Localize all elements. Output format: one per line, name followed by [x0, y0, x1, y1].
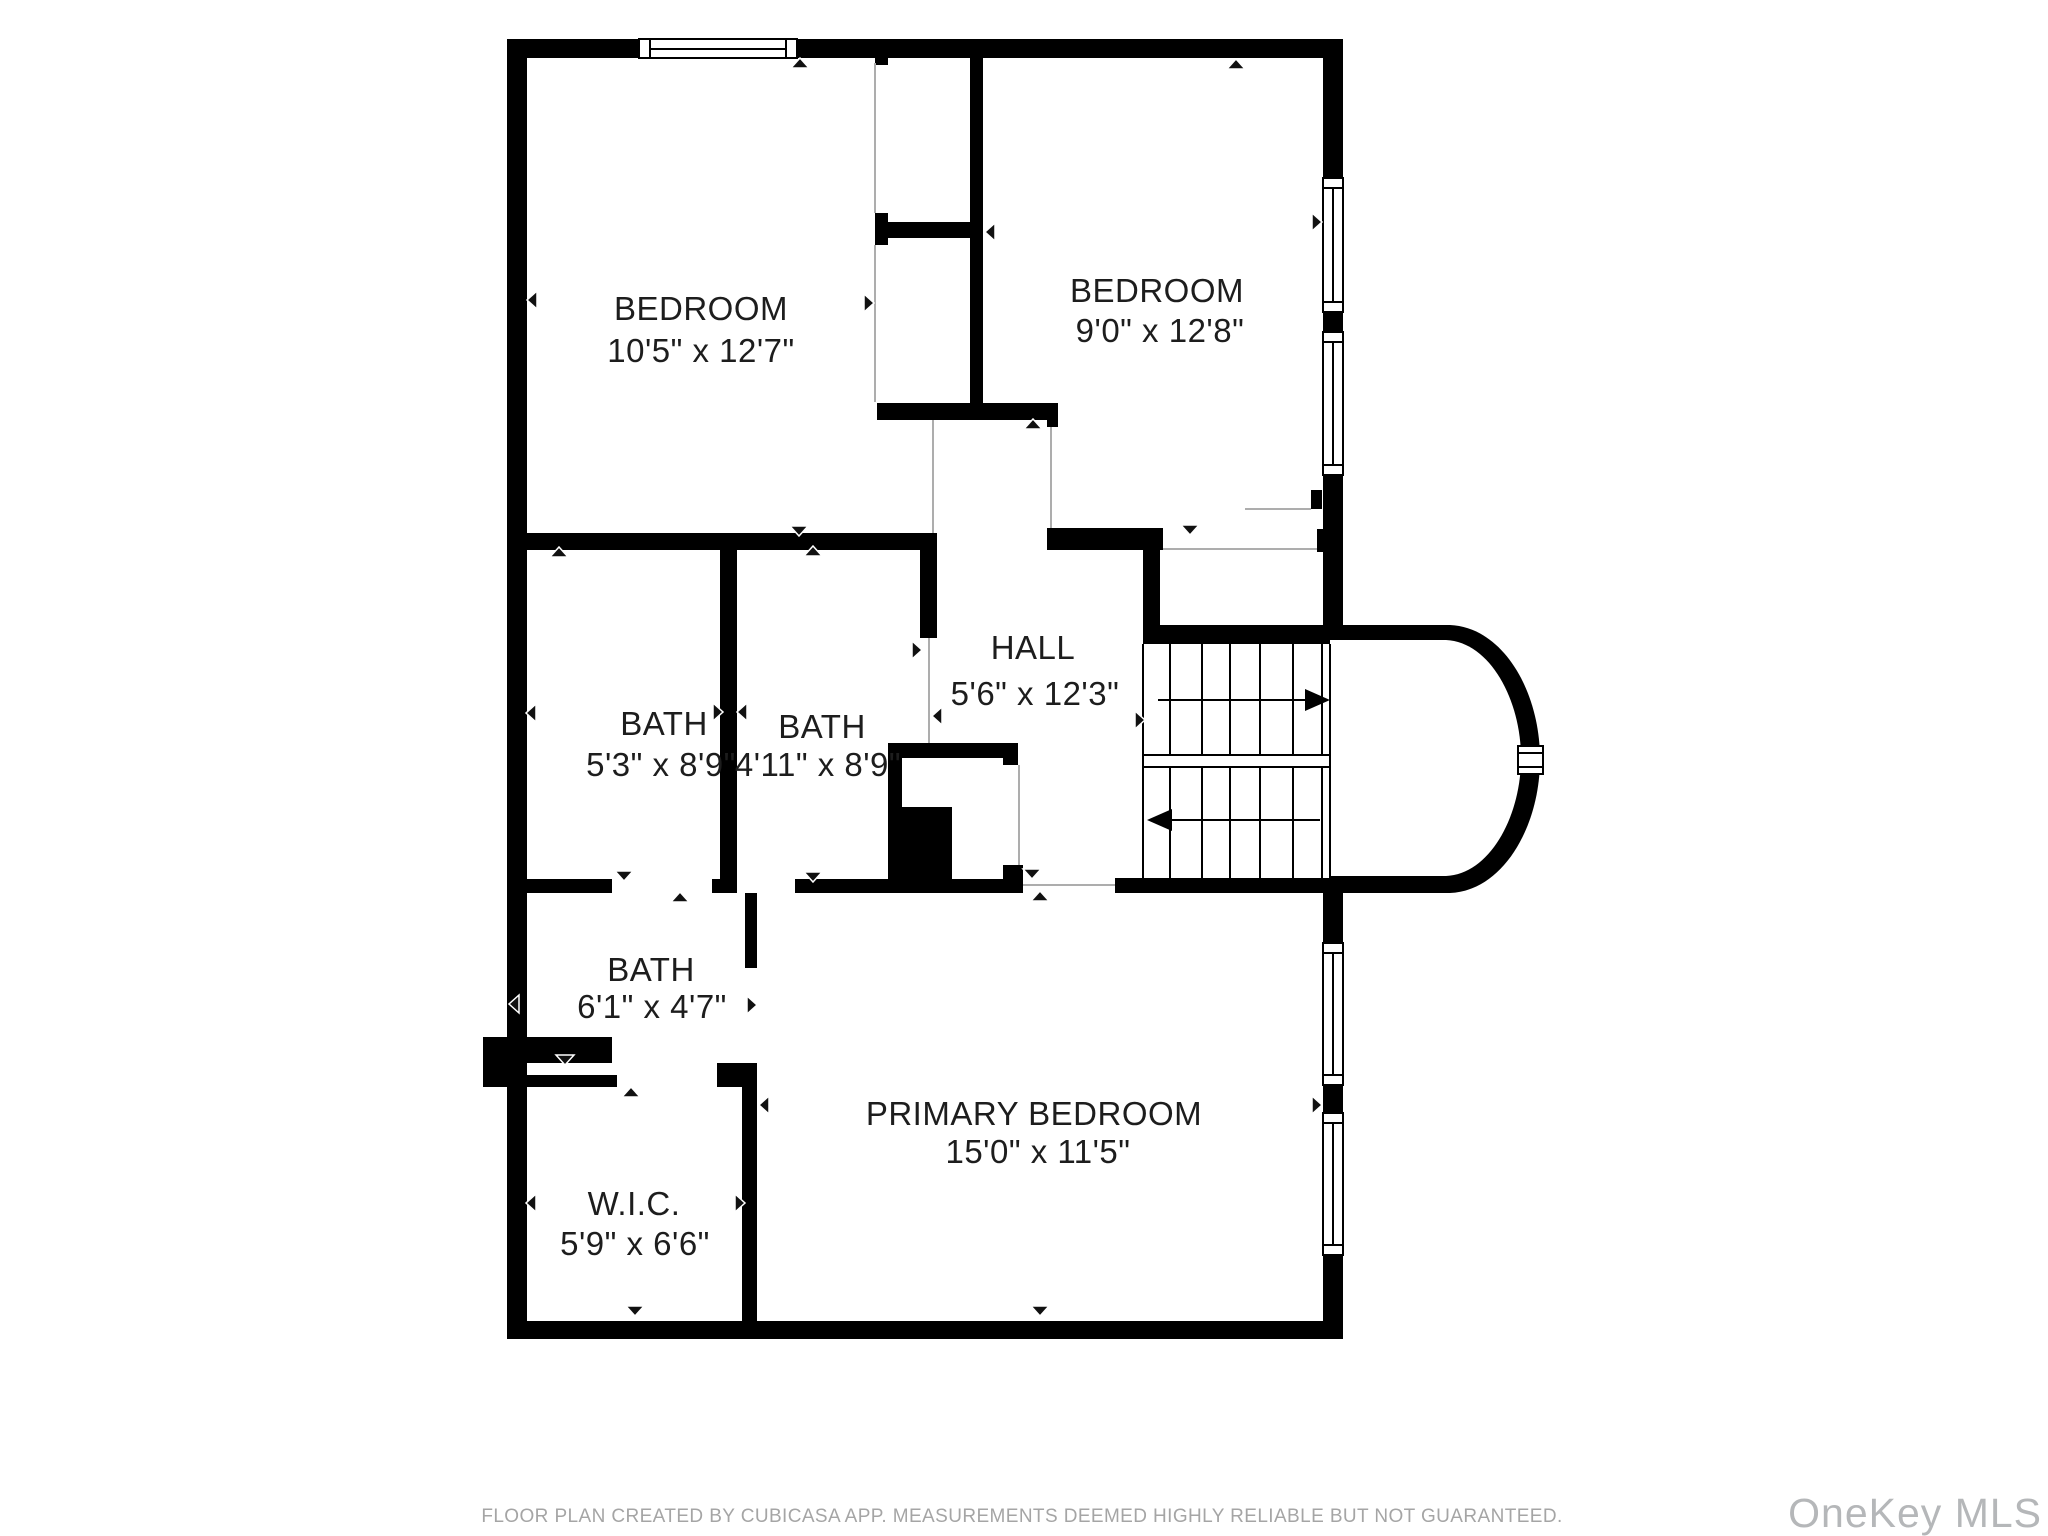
outer-wall-left — [507, 39, 527, 1339]
room-dims-hall: 5'6" x 12'3" — [951, 675, 1120, 712]
bath-bottom-wall-mid — [712, 879, 737, 893]
stairs-up-arrow — [1158, 689, 1330, 711]
shaft-top-wall — [888, 743, 1018, 758]
outer-wall-bottom — [507, 1321, 1343, 1339]
bath1-bottom-wall-left — [527, 879, 612, 893]
room-dims-bath3: 6'1" x 4'7" — [577, 988, 727, 1025]
bedroom1-bottom-wall — [527, 533, 937, 550]
bath2-right-wall-upper — [920, 533, 937, 638]
closet-bottom-wall — [877, 403, 1058, 420]
shaft-solid-block — [902, 807, 952, 892]
shaft-stub-top — [1003, 758, 1018, 765]
outer-wall-top — [507, 39, 1343, 58]
room-label-bedroom1: BEDROOM — [614, 290, 788, 327]
opening-lines — [875, 63, 1317, 885]
window-right-4 — [1323, 1113, 1343, 1255]
room-label-bath2: BATH — [778, 708, 866, 745]
wic-top-wall — [527, 1075, 617, 1087]
bay-inner-area — [1330, 640, 1521, 876]
window-top — [639, 39, 797, 58]
room-label-bath1: BATH — [620, 705, 708, 742]
stair-bay — [1330, 625, 1543, 893]
stair-left-wall — [1143, 550, 1160, 637]
window-right-1 — [1323, 178, 1343, 312]
exterior-protrusion — [483, 1037, 527, 1087]
room-label-wic: W.I.C. — [588, 1185, 681, 1222]
room-dims-primary-bedroom: 15'0" x 11'5" — [945, 1133, 1130, 1170]
wic-right-wall — [742, 1063, 757, 1339]
closet-stub-top — [875, 56, 888, 65]
window-right-3 — [1323, 943, 1343, 1085]
watermark: OneKey MLS — [1788, 1490, 2042, 1536]
room-dims-bath1: 5'3" x 8'9" — [586, 746, 736, 783]
walls — [483, 39, 1343, 1339]
room-dims-bedroom1: 10'5" x 12'7" — [607, 332, 794, 369]
bedroom2-corner-stub — [1311, 490, 1322, 509]
floor-plan-page: BEDROOM 10'5" x 12'7" BEDROOM 9'0" x 12'… — [0, 0, 2048, 1536]
closet-block-mid — [875, 213, 888, 245]
bedroom2-bottom-wall — [1047, 528, 1163, 550]
stair-top-right-stub — [1317, 529, 1330, 552]
stairs-down-arrow — [1147, 809, 1320, 831]
bay-window — [1518, 746, 1543, 774]
stair-top-wall — [1143, 625, 1333, 644]
staircase — [1143, 644, 1330, 878]
footer-disclaimer: FLOOR PLAN CREATED BY CUBICASA APP. MEAS… — [481, 1506, 1562, 1527]
room-dims-wic: 5'9" x 6'6" — [560, 1225, 710, 1262]
window-right-2 — [1323, 332, 1343, 475]
room-label-bath3: BATH — [607, 951, 695, 988]
shaft-stub-bottom — [1003, 865, 1023, 880]
room-dims-bedroom2: 9'0" x 12'8" — [1076, 312, 1245, 349]
room-label-hall: HALL — [991, 629, 1076, 666]
floor-plan-canvas: BEDROOM 10'5" x 12'7" BEDROOM 9'0" x 12'… — [0, 0, 2048, 1536]
room-labels: BEDROOM 10'5" x 12'7" BEDROOM 9'0" x 12'… — [560, 272, 1244, 1262]
bath-divider-wall — [720, 550, 737, 882]
closet-divider-wall — [888, 222, 970, 238]
room-label-bedroom2: BEDROOM — [1070, 272, 1244, 309]
hall-bottom-wall-right — [1115, 878, 1330, 893]
bath3-right-wall — [745, 893, 757, 968]
bedroom2-left-wall — [970, 56, 983, 403]
room-label-primary-bedroom: PRIMARY BEDROOM — [866, 1095, 1202, 1132]
room-dims-bath2: 4'11" x 8'9" — [735, 746, 901, 783]
hall-top-corner — [1047, 403, 1058, 427]
